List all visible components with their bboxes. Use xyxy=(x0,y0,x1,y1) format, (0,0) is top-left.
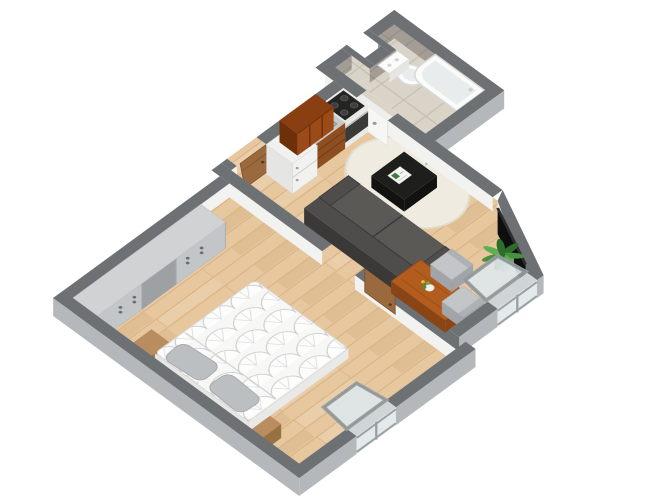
floorplan-3d-render xyxy=(0,0,670,503)
floorplan-canvas xyxy=(0,0,670,503)
